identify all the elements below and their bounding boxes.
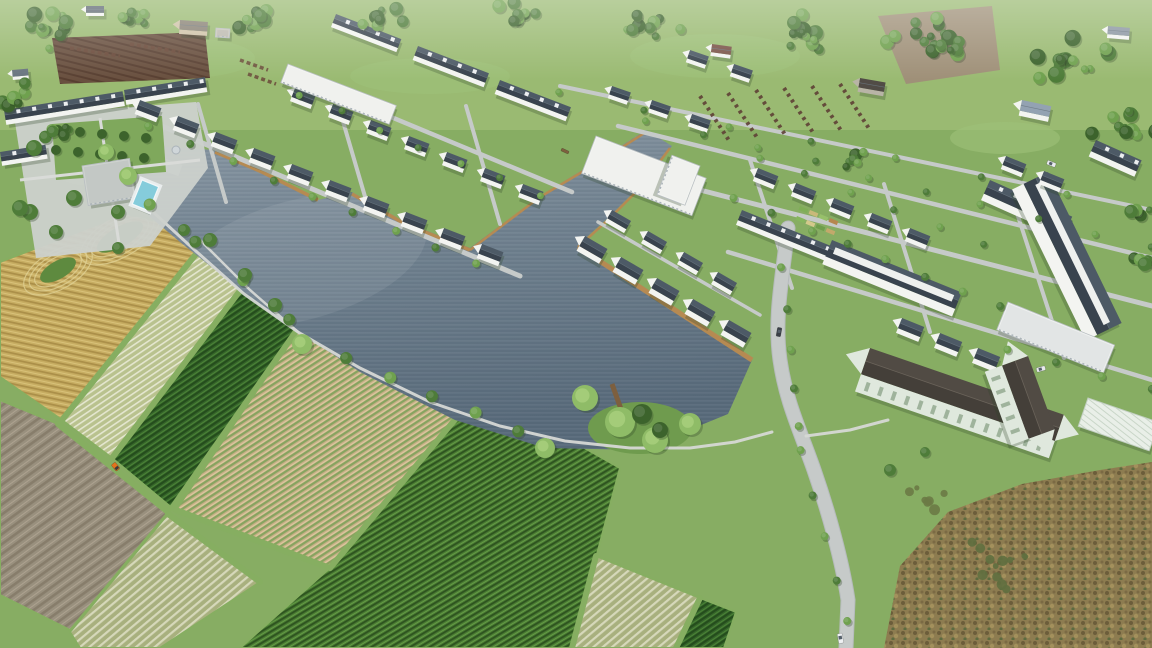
heath-bush bbox=[914, 485, 919, 490]
willow-crown bbox=[295, 337, 306, 348]
tree-light bbox=[834, 577, 838, 581]
heath-bush bbox=[1007, 557, 1013, 563]
willow-crown bbox=[682, 416, 694, 428]
tree-light bbox=[239, 269, 247, 277]
tree-light bbox=[641, 107, 645, 111]
tree-light bbox=[14, 202, 23, 211]
tree-light bbox=[145, 200, 152, 207]
fountain bbox=[172, 146, 180, 154]
tree-light bbox=[513, 426, 520, 433]
courtyard-tree bbox=[119, 131, 129, 141]
tree-light bbox=[1126, 108, 1130, 112]
tree-light bbox=[802, 171, 806, 175]
tree-light bbox=[59, 131, 65, 137]
aerial-render-viewport: Aerial architectural rendering of a lake… bbox=[0, 0, 1152, 648]
dormer bbox=[95, 96, 100, 101]
tree-light bbox=[1108, 112, 1114, 118]
tree-light bbox=[797, 447, 801, 451]
tree-light bbox=[393, 228, 397, 232]
tree-light bbox=[997, 303, 1001, 307]
heath-bush bbox=[977, 570, 987, 580]
tree-light bbox=[654, 424, 663, 433]
courtyard-tree bbox=[97, 129, 107, 139]
tree-light bbox=[937, 224, 941, 228]
tree-light bbox=[341, 353, 348, 360]
willow-crown bbox=[575, 388, 589, 402]
atmospheric-haze bbox=[0, 0, 1152, 80]
tree-light bbox=[981, 242, 985, 246]
tree-light bbox=[204, 234, 212, 242]
heath-bush bbox=[929, 504, 940, 515]
tree-light bbox=[385, 373, 392, 380]
dormer bbox=[183, 81, 188, 86]
tree-light bbox=[701, 132, 705, 136]
tree-light bbox=[1115, 123, 1120, 128]
heath-bush bbox=[998, 556, 1008, 566]
tree-light bbox=[643, 118, 647, 122]
tree-light bbox=[28, 142, 37, 151]
tree-light bbox=[112, 206, 120, 214]
willow-crown bbox=[100, 146, 109, 155]
heath-bush bbox=[1023, 554, 1028, 559]
dormer bbox=[79, 99, 84, 104]
tree-light bbox=[882, 256, 886, 260]
dormer bbox=[136, 89, 141, 94]
tree-light bbox=[271, 177, 275, 181]
heath-bush bbox=[985, 555, 994, 564]
tree-light bbox=[978, 174, 982, 178]
tree-light bbox=[1139, 259, 1147, 267]
tree-light bbox=[187, 141, 191, 145]
masterplan-rendering: Aerial architectural rendering of a lake… bbox=[0, 0, 1152, 648]
courtyard-tree bbox=[51, 145, 61, 155]
tree-light bbox=[843, 164, 847, 168]
tree-light bbox=[844, 618, 848, 622]
tree-light bbox=[885, 465, 892, 472]
courtyard-tree bbox=[141, 133, 151, 143]
tree-light bbox=[854, 159, 859, 164]
tree-light bbox=[1147, 207, 1151, 211]
tree-light bbox=[284, 315, 291, 322]
tree-light bbox=[269, 299, 277, 307]
tree-light bbox=[808, 139, 812, 143]
tree-light bbox=[730, 195, 734, 199]
dormer bbox=[32, 106, 37, 111]
tree-light bbox=[1092, 231, 1096, 235]
heath-bush bbox=[905, 487, 914, 496]
car-window bbox=[777, 330, 780, 334]
tree-light bbox=[850, 155, 856, 161]
willow-crown bbox=[609, 411, 626, 428]
tree-light bbox=[821, 533, 825, 537]
tree-light bbox=[415, 145, 419, 149]
tree-light bbox=[1087, 128, 1094, 135]
tree-light bbox=[866, 175, 870, 179]
courtyard-tree bbox=[139, 153, 149, 163]
tree-light bbox=[1053, 359, 1057, 363]
tree-light bbox=[960, 288, 964, 292]
tree-light bbox=[1004, 346, 1008, 350]
tree-light bbox=[50, 226, 58, 234]
tree-light bbox=[1064, 191, 1068, 195]
tree-light bbox=[755, 145, 759, 149]
tree-light bbox=[784, 306, 788, 310]
dormer bbox=[12, 151, 17, 156]
courtyard-tree bbox=[73, 147, 83, 157]
tree-light bbox=[923, 189, 927, 193]
heath-bush bbox=[923, 498, 932, 507]
tree-light bbox=[309, 193, 313, 197]
tree-light bbox=[48, 127, 54, 133]
tree-light bbox=[8, 92, 16, 100]
tree-light bbox=[63, 125, 68, 130]
tree-light bbox=[427, 391, 434, 398]
dormer bbox=[168, 84, 173, 89]
dormer bbox=[48, 104, 53, 109]
tree-light bbox=[230, 158, 234, 162]
courtyard-tree bbox=[75, 127, 85, 137]
tree-light bbox=[471, 408, 478, 415]
heath-bush bbox=[975, 543, 985, 553]
tree-light bbox=[778, 264, 782, 268]
tree-light bbox=[922, 274, 926, 278]
tree-light bbox=[473, 260, 477, 264]
heath-bush bbox=[993, 563, 999, 569]
tree-light bbox=[891, 207, 895, 211]
tree-light bbox=[1098, 373, 1102, 377]
tree-light bbox=[191, 237, 198, 244]
heath-bush bbox=[968, 538, 977, 547]
tree-light bbox=[339, 108, 343, 112]
tree-light bbox=[845, 241, 849, 245]
tree-light bbox=[113, 243, 120, 250]
tree-light bbox=[809, 492, 813, 496]
tree-light bbox=[68, 192, 77, 201]
tree-light bbox=[1126, 206, 1133, 213]
car-window bbox=[838, 636, 842, 640]
dormer bbox=[111, 94, 116, 99]
tree-light bbox=[556, 89, 560, 93]
tree-light bbox=[1036, 216, 1040, 220]
tree-light bbox=[848, 190, 852, 194]
tree-light bbox=[1121, 127, 1129, 135]
tree-light bbox=[634, 406, 645, 417]
tree-light bbox=[860, 149, 865, 154]
tree-light bbox=[757, 155, 761, 159]
heath-bush bbox=[1002, 585, 1010, 593]
tree-light bbox=[40, 132, 47, 139]
tree-light bbox=[726, 124, 730, 128]
dormer bbox=[16, 109, 21, 114]
tree-light bbox=[921, 448, 927, 454]
willow-crown bbox=[121, 169, 131, 179]
tree-light bbox=[179, 225, 186, 232]
dormer bbox=[152, 86, 157, 91]
tree-light bbox=[145, 123, 149, 127]
heath-bush bbox=[940, 490, 947, 497]
tree-light bbox=[432, 244, 436, 248]
tree-light bbox=[349, 209, 353, 213]
tree-light bbox=[15, 100, 20, 105]
tree-light bbox=[813, 158, 817, 162]
tree-light bbox=[296, 93, 300, 97]
dormer bbox=[63, 101, 68, 106]
tree-light bbox=[538, 193, 542, 197]
tree-light bbox=[497, 175, 501, 179]
tree-light bbox=[768, 210, 772, 214]
tree-light bbox=[458, 161, 462, 165]
tree-light bbox=[809, 228, 813, 232]
tree-light bbox=[796, 423, 800, 427]
tree-light bbox=[977, 201, 981, 205]
tree-light bbox=[791, 385, 795, 389]
willow-crown bbox=[538, 441, 549, 452]
meadow bbox=[950, 122, 1060, 154]
tree-light bbox=[788, 347, 792, 351]
tree-light bbox=[377, 128, 381, 132]
tree-light bbox=[893, 155, 897, 159]
